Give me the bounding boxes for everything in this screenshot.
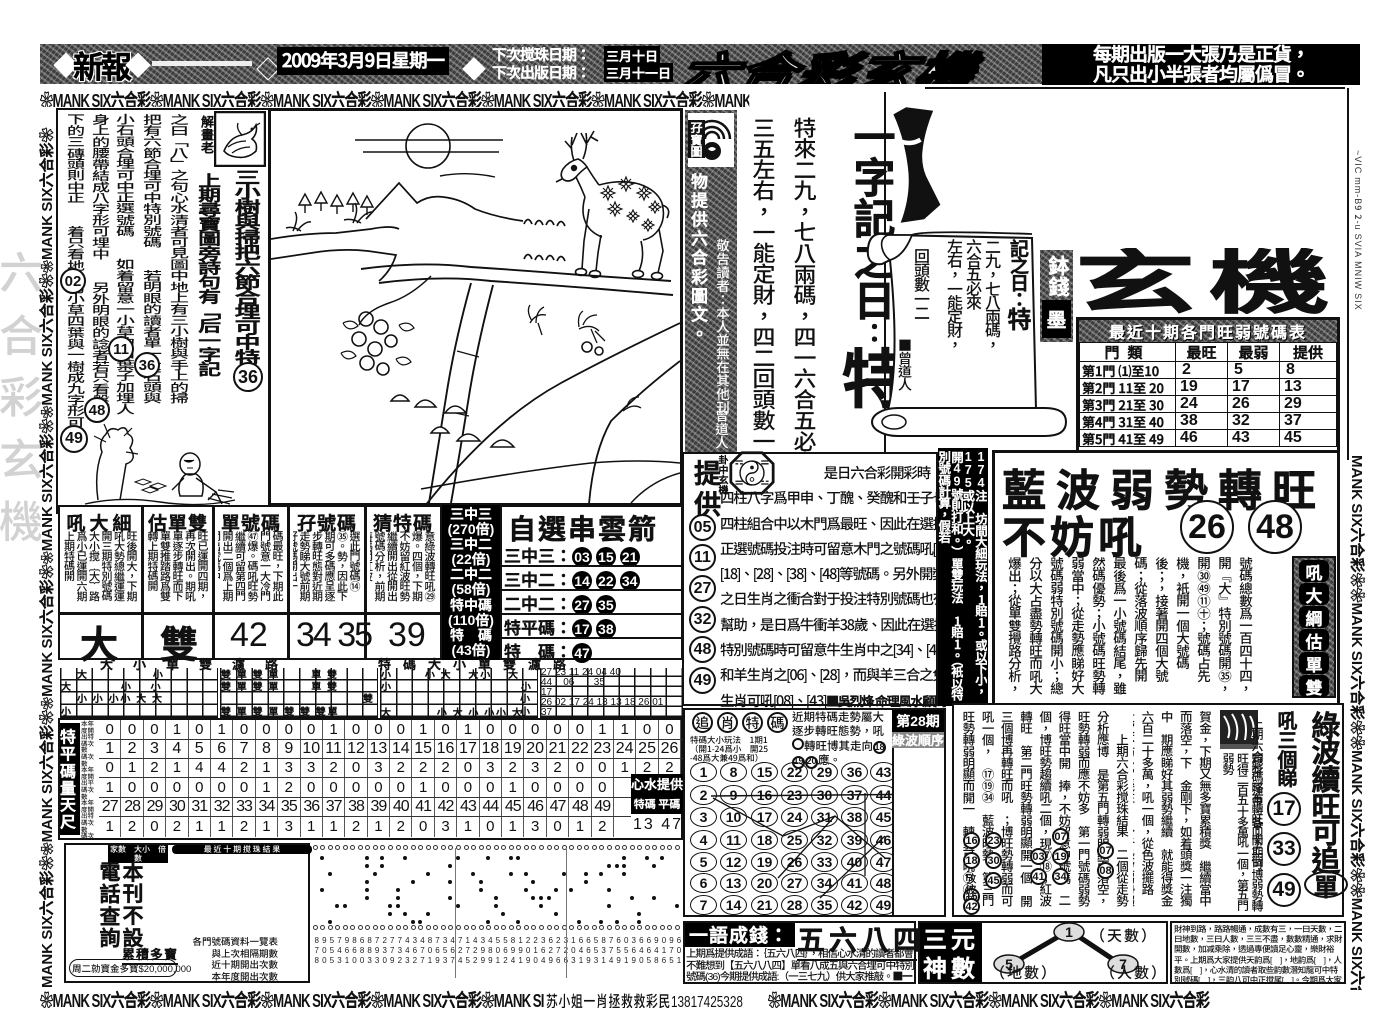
svg-text:1: 1 xyxy=(1065,924,1073,940)
